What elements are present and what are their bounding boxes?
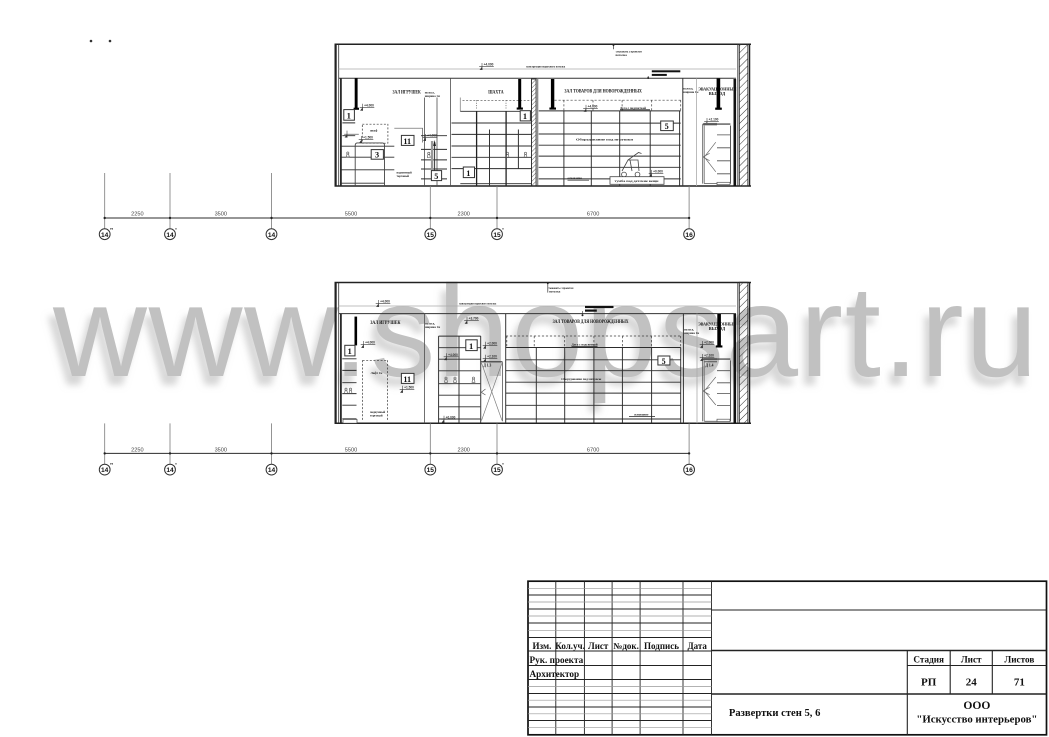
svg-text:14: 14 [268, 467, 276, 474]
svg-text:основание: основание [568, 176, 583, 180]
svg-text:6700: 6700 [587, 212, 599, 218]
svg-text:+2.100: +2.100 [709, 118, 719, 122]
svg-text:1: 1 [466, 169, 470, 178]
svg-text:ЗАЛ ТОВАРОВ ДЛЯ НОВОРОЖДЕННЫХ: ЗАЛ ТОВАРОВ ДЛЯ НОВОРОЖДЕННЫХ [564, 90, 642, 95]
svg-text:14: 14 [268, 232, 276, 239]
svg-text:16: 16 [685, 232, 693, 239]
svg-text:15: 15 [427, 232, 435, 239]
svg-text:3: 3 [375, 151, 379, 160]
svg-text:11: 11 [403, 375, 411, 384]
svg-text:1: 1 [523, 112, 527, 121]
svg-text:14: 14 [101, 467, 109, 474]
svg-text:6700: 6700 [587, 447, 599, 453]
svg-text:1: 1 [469, 341, 473, 351]
svg-text:Листов: Листов [1004, 655, 1034, 665]
svg-text:14: 14 [166, 467, 174, 474]
svg-text:ЗАЛ ТОВАРОВ ДЛЯ НОВОРОЖДЕННЫХ: ЗАЛ ТОВАРОВ ДЛЯ НОВОРОЖДЕННЫХ [553, 320, 630, 325]
svg-text:основание: основание [634, 412, 649, 416]
svg-text:3500: 3500 [215, 212, 227, 218]
svg-text:Лист: Лист [588, 641, 609, 651]
svg-text:Лифт 1м: Лифт 1м [371, 371, 383, 375]
svg-text:’: ’ [175, 229, 177, 235]
svg-text:5500: 5500 [345, 212, 357, 218]
svg-text:2300: 2300 [457, 447, 469, 453]
svg-text:15: 15 [493, 232, 501, 239]
svg-text:+0.000: +0.000 [446, 415, 456, 419]
svg-text:Д 1.3: Д 1.3 [483, 364, 491, 368]
svg-text:+2.000: +2.000 [704, 341, 714, 345]
svg-text:15: 15 [493, 467, 501, 474]
svg-text:5: 5 [662, 357, 666, 366]
svg-text:+4.000: +4.000 [365, 341, 375, 345]
svg-text:+4.000: +4.000 [427, 134, 437, 138]
svg-text:5: 5 [434, 172, 438, 181]
svg-text:ширина 1м: ширина 1м [425, 94, 440, 98]
svg-text:Д 1.4: Д 1.4 [706, 363, 714, 367]
svg-text:14: 14 [101, 232, 109, 239]
svg-text:+2.000: +2.000 [487, 341, 497, 345]
svg-text:1: 1 [347, 110, 351, 120]
svg-text:Подпись: Подпись [644, 641, 679, 651]
svg-text:+1.500: +1.500 [363, 136, 373, 140]
svg-text:’: ’ [175, 464, 177, 470]
svg-text:2250: 2250 [131, 212, 143, 218]
svg-text:конструкции подвесного потолка: конструкции подвесного потолка [459, 301, 496, 305]
svg-text:+1.500: +1.500 [404, 385, 414, 389]
svg-text:’: ’ [502, 229, 504, 235]
svg-text:ЗАЛ ИГРУШЕК: ЗАЛ ИГРУШЕК [393, 90, 422, 95]
svg-text:+4.000: +4.000 [588, 105, 598, 109]
svg-text:торговый: торговый [397, 174, 410, 178]
svg-text:16: 16 [685, 467, 693, 474]
svg-text:Изм.: Изм. [532, 641, 551, 651]
svg-text:Стадия: Стадия [913, 655, 944, 665]
svg-text:ЗАЛ ИГРУШЕК: ЗАЛ ИГРУШЕК [370, 321, 401, 326]
svg-text:15: 15 [427, 467, 435, 474]
svg-text:ООО: ООО [963, 699, 990, 712]
svg-text:ВЫХОД: ВЫХОД [709, 326, 725, 331]
svg-text:ширина 1м: ширина 1м [425, 325, 440, 329]
svg-text:11: 11 [403, 137, 411, 146]
svg-text:Рук. проекта: Рук. проекта [530, 655, 584, 665]
svg-text:’’: ’’ [110, 229, 113, 235]
svg-text:"Искусство интерьеров": "Искусство интерьеров" [916, 714, 1037, 726]
svg-text:+0.000: +0.000 [653, 170, 663, 174]
svg-text:потолка: потолка [549, 289, 561, 293]
svg-text:71: 71 [1014, 677, 1025, 689]
svg-text:ширина 1м: ширина 1м [684, 331, 699, 335]
svg-text:5500: 5500 [345, 447, 357, 453]
svg-text:+2.100: +2.100 [704, 354, 714, 358]
svg-text:потолка: потолка [616, 53, 628, 57]
svg-text:Оборудование под матрасы: Оборудование под матрасы [561, 377, 601, 381]
svg-text:Дуга с подсветкой: Дуга с подсветкой [572, 343, 598, 347]
svg-text:’’: ’’ [110, 464, 113, 470]
svg-text:конструкция подвесного потолка: конструкция подвесного потолка [526, 65, 565, 69]
svg-text:Оборудование под игрушки: Оборудование под игрушки [576, 138, 633, 142]
svg-text:Архитектор: Архитектор [530, 669, 580, 679]
svg-text:Развертки стен 5, 6: Развертки стен 5, 6 [729, 708, 821, 719]
svg-text:2250: 2250 [131, 447, 143, 453]
svg-text:Дуга с подсветкой: Дуга с подсветкой [620, 106, 646, 110]
svg-text:’: ’ [502, 464, 504, 470]
svg-text:РП: РП [921, 677, 937, 689]
svg-text:+4.000: +4.000 [380, 300, 390, 304]
svg-text:шкаф: шкаф [370, 129, 377, 132]
svg-text:ШАХТА: ШАХТА [488, 90, 504, 95]
svg-text:1: 1 [348, 346, 352, 356]
svg-text:+3.700: +3.700 [469, 317, 479, 321]
svg-text:3500: 3500 [215, 447, 227, 453]
svg-text:+4.000: +4.000 [448, 353, 458, 357]
svg-text:24: 24 [966, 677, 978, 689]
svg-text:2300: 2300 [457, 212, 469, 218]
svg-text:Кол.уч.: Кол.уч. [555, 641, 585, 651]
svg-text:+4.000: +4.000 [484, 63, 494, 67]
svg-text:торговый: торговый [370, 414, 383, 418]
svg-text:+4.000: +4.000 [364, 103, 374, 107]
svg-text:Дата: Дата [687, 641, 707, 651]
svg-text:+2.100: +2.100 [487, 354, 497, 358]
svg-text:14: 14 [166, 232, 174, 239]
svg-text:5: 5 [665, 122, 669, 131]
svg-text:тумба под детские вещи: тумба под детские вещи [615, 179, 659, 183]
svg-text:№док.: №док. [613, 641, 639, 651]
svg-text:Лист: Лист [961, 655, 982, 665]
